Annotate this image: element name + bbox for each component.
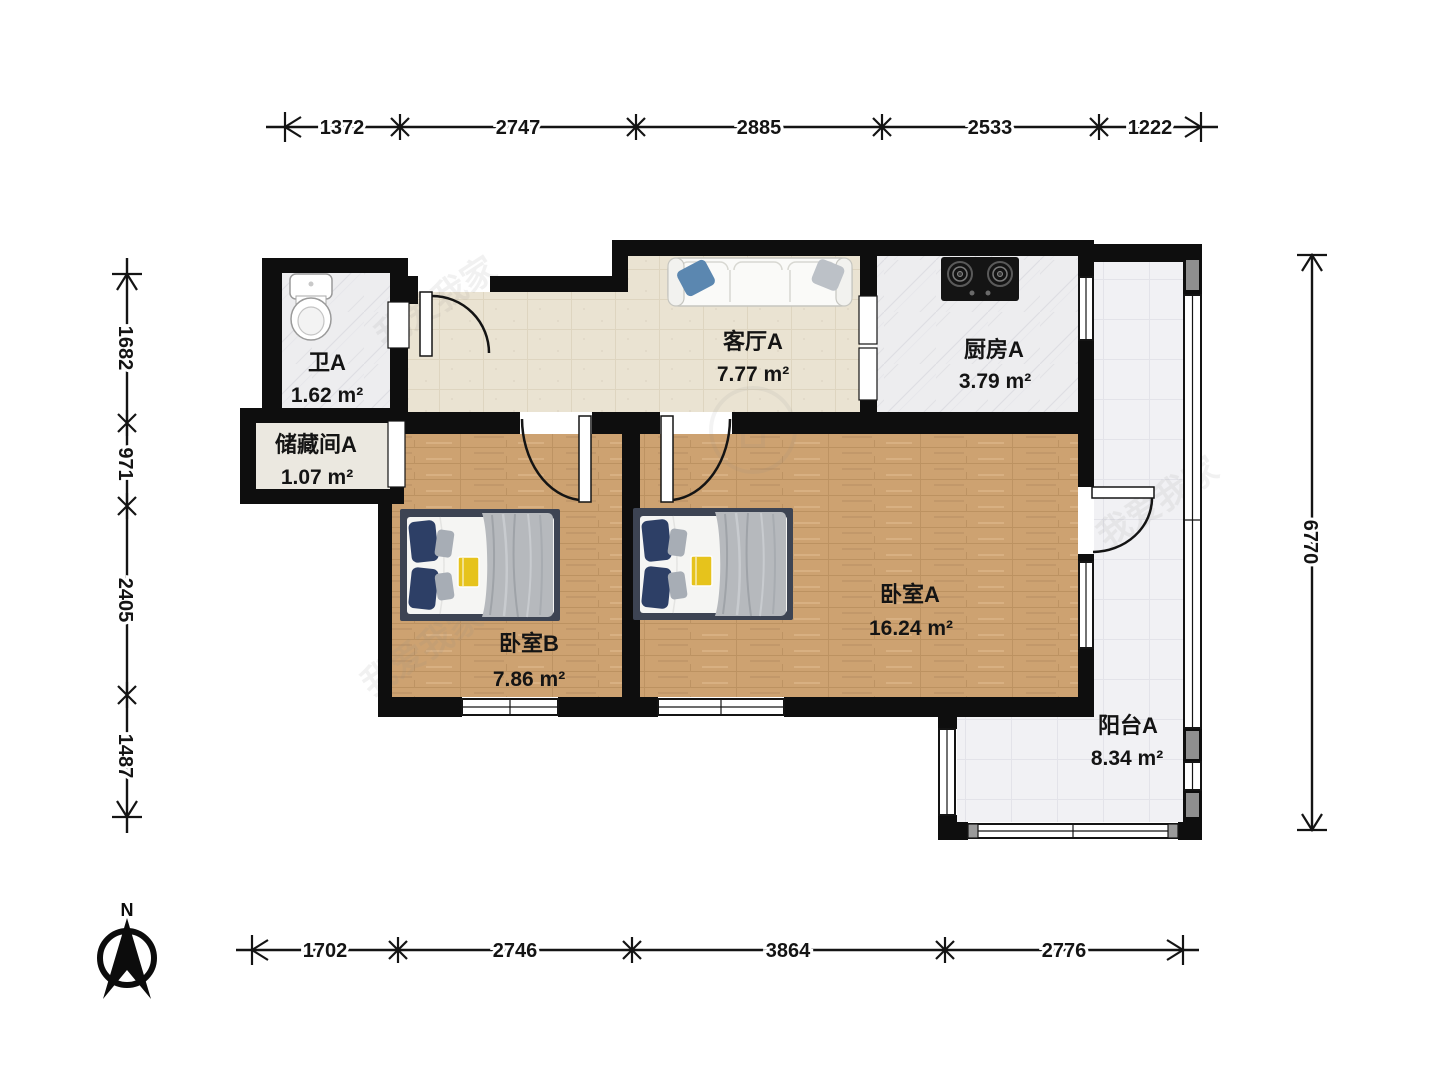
room-area-balcony: 8.34 m² [1091,747,1163,770]
dim-left-4: 1487 [114,734,136,779]
bedroomB-window [462,699,558,715]
dim-bottom-1: 1702 [303,940,348,962]
bathroom-door [388,302,409,348]
dim-top-3: 2885 [737,117,782,139]
room-area-storage: 1.07 m² [281,466,353,489]
room-label-balcony: 阳台A [1098,713,1158,738]
dim-bottom-4: 2776 [1042,940,1087,962]
balcony-bottom-window [968,824,1178,838]
room-label-living: 客厅A [723,329,783,354]
room-label-storage: 储藏间A [275,432,357,457]
kitchen-balcony-window [1079,277,1093,340]
dim-bottom-3: 3864 [766,940,811,962]
room-label-kitchen: 厨房A [964,337,1024,362]
dim-left-3: 2405 [114,578,136,623]
room-area-bedroomA: 16.24 m² [869,617,953,640]
balcony-left-window [939,729,955,815]
compass-icon: N [100,900,154,999]
stove-icon [941,257,1019,301]
dim-bottom-2: 2746 [493,940,538,962]
bedroomA-balcony-window [1079,562,1093,648]
dim-top-5: 1222 [1128,117,1173,139]
storage-door [388,421,405,487]
dim-left-1: 1682 [114,326,136,371]
bedroomA-window [658,699,784,715]
bed-icon [633,508,793,620]
dim-left-2: 971 [114,447,136,480]
sofa-icon [668,258,852,306]
compass-north-label: N [121,900,134,920]
room-label-bedroomA: 卧室A [880,582,940,607]
balcony-right-window [1184,295,1201,728]
balcony-right-window-lower [1184,762,1201,790]
bed-icon [400,509,560,621]
room-area-living: 7.77 m² [717,363,789,386]
room-area-kitchen: 3.79 m² [959,370,1031,393]
dim-top-1: 1372 [320,117,365,139]
room-area-bathroom: 1.62 m² [291,384,363,407]
dim-top-4: 2533 [968,117,1013,139]
kitchen-sliding-door [859,296,877,400]
toilet-icon [290,274,332,340]
dim-right-1: 6770 [1299,520,1321,565]
room-label-bedroomB: 卧室B [499,631,559,656]
room-label-bathroom: 卫A [308,350,346,375]
floorplan: 我爱我家 我爱我家 我爱我家 [0,0,1440,1080]
room-area-bedroomB: 7.86 m² [493,668,565,691]
dim-top-2: 2747 [496,117,541,139]
